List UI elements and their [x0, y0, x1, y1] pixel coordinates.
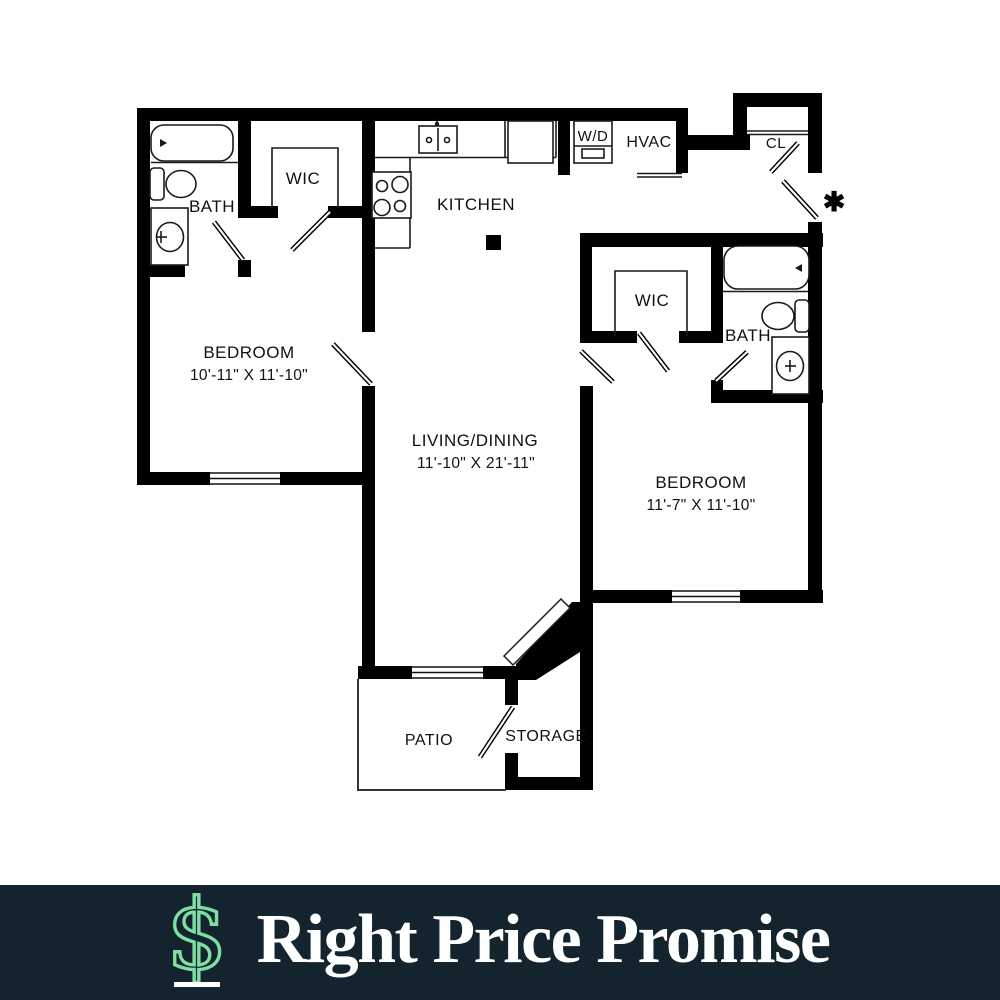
floor-plan-image: BATH WIC KITCHEN W/D HVAC CL BEDROOM 10'…	[0, 0, 1000, 885]
room-label-wd: W/D	[578, 128, 609, 145]
window-bedroom-left	[210, 472, 280, 485]
entry-asterisk-marker: ✱	[823, 187, 846, 217]
room-dims-bedroom-left: 10'-11" X 11'-10"	[190, 367, 308, 384]
room-label-hvac: HVAC	[626, 134, 671, 151]
room-label-wic-right: WIC	[635, 291, 670, 310]
footer-title: Right Price Promise	[257, 905, 830, 981]
room-label-living: LIVING/DINING	[412, 431, 538, 450]
dollar-underline	[174, 982, 220, 987]
room-dims-living: 11'-10" X 21'-11"	[417, 455, 535, 472]
room-label-cl: CL	[766, 135, 786, 152]
dollar-sign-icon: $	[171, 898, 223, 987]
room-dims-bedroom-right: 11'-7" X 11'-10"	[646, 497, 755, 514]
room-label-bath-left: BATH	[189, 197, 235, 216]
door-bedroom-left	[333, 344, 371, 384]
room-label-bedroom-left: BEDROOM	[203, 343, 294, 362]
room-label-wic-left: WIC	[286, 169, 321, 188]
stove-icon	[372, 172, 411, 218]
toilet-left-icon	[150, 168, 196, 200]
bathtub-left-icon	[151, 125, 238, 163]
room-label-storage: STORAGE	[505, 728, 586, 745]
kitchen-sink-icon	[419, 119, 457, 153]
footer-banner: $ Right Price Promise	[0, 885, 1000, 1000]
room-label-kitchen: KITCHEN	[437, 195, 515, 214]
room-label-bath-right: BATH	[725, 326, 771, 345]
closet-shelf-line	[747, 131, 808, 135]
room-label-patio: PATIO	[405, 732, 453, 749]
kitchen-island-marker	[486, 235, 501, 250]
room-label-bedroom-right: BEDROOM	[655, 473, 746, 492]
svg-text:$: $	[166, 879, 227, 991]
sink-right-icon	[772, 337, 809, 394]
window-bedroom-right	[672, 590, 740, 603]
door-bedroom-right	[581, 351, 613, 382]
floor-plan-svg: BATH WIC KITCHEN W/D HVAC CL BEDROOM 10'…	[0, 0, 1000, 885]
window-living	[412, 666, 483, 679]
sink-left-icon	[151, 208, 188, 265]
door-bath-left	[214, 222, 243, 260]
door-wic-right	[639, 333, 668, 371]
door-wic-left	[292, 212, 330, 250]
door-entry	[783, 181, 817, 218]
hvac-threshold	[637, 174, 682, 178]
door-bath-right	[716, 352, 747, 381]
bathtub-right-icon	[723, 246, 809, 292]
dollar-sign-glyph: $	[171, 898, 223, 976]
